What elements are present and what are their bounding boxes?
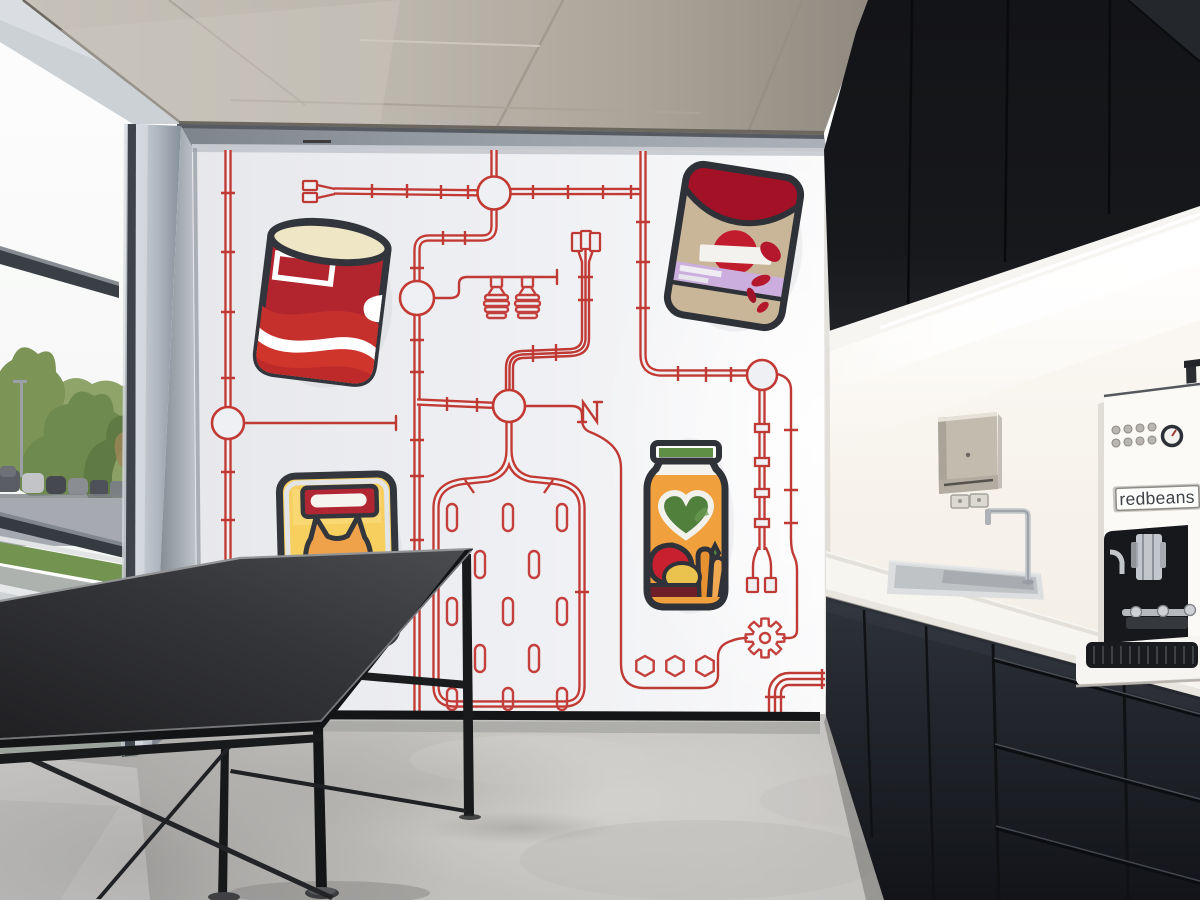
svg-text:redbeans: redbeans <box>1119 487 1195 510</box>
